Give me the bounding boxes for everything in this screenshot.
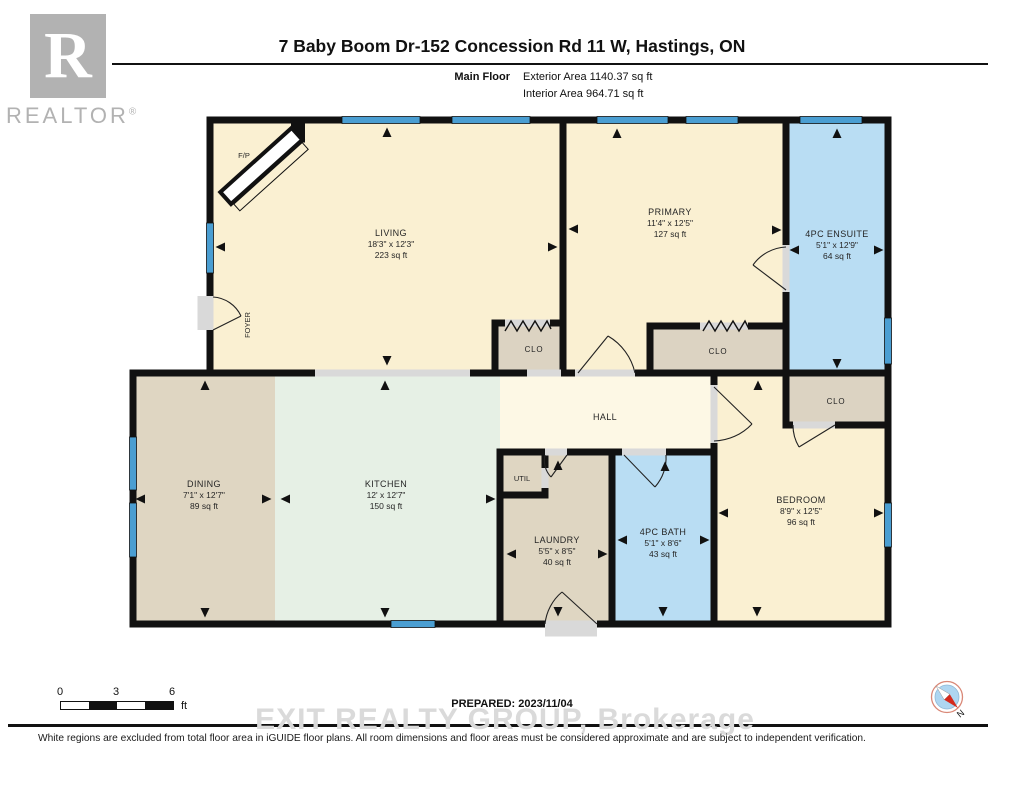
primary-name: PRIMARY	[648, 207, 692, 217]
bedroom-area: 96 sq ft	[787, 517, 816, 527]
living-area: 223 sq ft	[375, 250, 408, 260]
bedroom-dims: 8'9" x 12'5"	[780, 506, 822, 516]
floorplan-drawing: LIVING 18'3" x 12'3" 223 sq ft PRIMARY 1…	[0, 0, 1024, 791]
bath-area: 43 sq ft	[649, 549, 678, 559]
closet-living-label: CLO	[525, 345, 544, 354]
ensuite-area: 64 sq ft	[823, 251, 852, 261]
disclaimer-text: White regions are excluded from total fl…	[38, 733, 866, 744]
foyer-label: FOYER	[243, 312, 252, 338]
scale-tick-6: 6	[162, 686, 182, 698]
bedroom-name: BEDROOM	[776, 495, 825, 505]
dining-dims: 7'1" x 12'7"	[183, 490, 225, 500]
closet-primary-label: CLO	[709, 347, 728, 356]
closet-bedroom-label: CLO	[827, 397, 846, 406]
laundry-area: 40 sq ft	[543, 557, 572, 567]
ensuite-dims: 5'1" x 12'9"	[816, 240, 858, 250]
living-name: LIVING	[375, 228, 407, 238]
laundry-name: LAUNDRY	[534, 535, 580, 545]
dining-area: 89 sq ft	[190, 501, 219, 511]
scale-tick-3: 3	[106, 686, 126, 698]
brokerage-watermark: EXIT REALTY GROUP, Brokerage	[0, 703, 1010, 737]
kitchen-dims: 12' x 12'7"	[367, 490, 406, 500]
util-label: UTIL	[514, 474, 530, 483]
scale-tick-0: 0	[50, 686, 70, 698]
primary-area: 127 sq ft	[654, 229, 687, 239]
compass-north-label: N	[955, 708, 966, 720]
floorplan-page: R REALTOR® 7 Baby Boom Dr-152 Concession…	[0, 0, 1024, 791]
hall-label: HALL	[593, 412, 617, 422]
bath-dims: 5'1" x 8'6"	[644, 538, 681, 548]
kitchen-area: 150 sq ft	[370, 501, 403, 511]
fireplace-label: F/P	[238, 151, 250, 160]
ensuite-name: 4PC ENSUITE	[805, 229, 868, 239]
living-dims: 18'3" x 12'3"	[368, 239, 415, 249]
kitchen-name: KITCHEN	[365, 479, 407, 489]
dining-name: DINING	[187, 479, 221, 489]
bath-name: 4PC BATH	[640, 527, 687, 537]
primary-dims: 11'4" x 12'5"	[647, 218, 693, 228]
laundry-dims: 5'5" x 8'5"	[538, 546, 575, 556]
compass-icon: N	[923, 676, 973, 728]
